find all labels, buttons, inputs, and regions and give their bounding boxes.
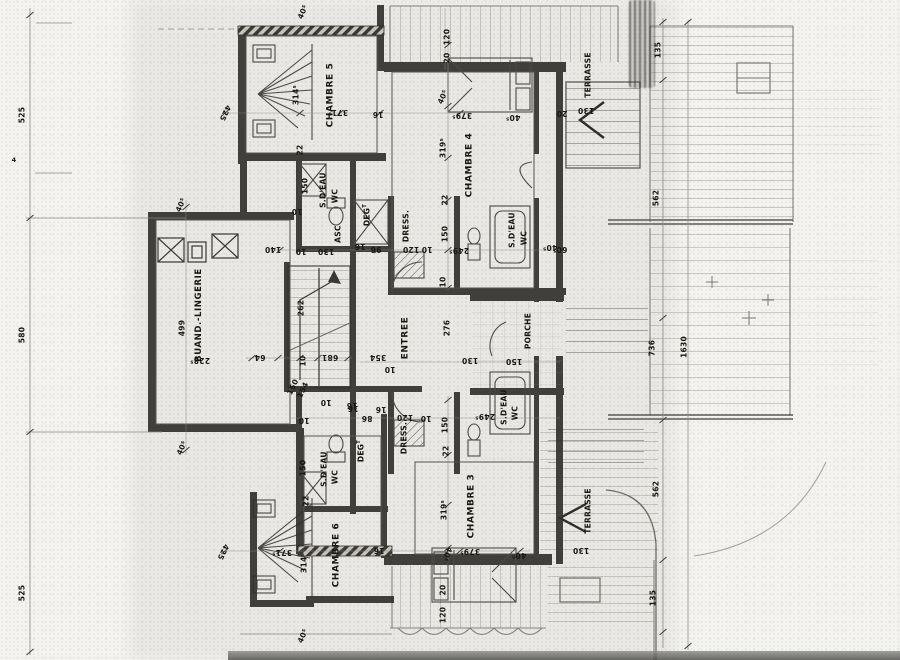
- dim-ch5-16: 16: [372, 110, 383, 118]
- dim-dress-l-120: 120: [397, 413, 414, 421]
- dim-dress-u-249-5: 249⁵: [449, 246, 469, 254]
- dim-row-140: 140: [265, 245, 282, 253]
- dim-stair-10: 10: [299, 355, 307, 366]
- scan-smudge: [629, 0, 655, 88]
- dim-deg-l-16a: 16: [347, 404, 358, 412]
- dim-left-580: 580: [18, 327, 26, 344]
- deg-upper-sup: T: [362, 204, 368, 208]
- scan-edge-bar: [228, 651, 900, 660]
- dim-deg-l-86: 86: [361, 414, 372, 422]
- room-label-sdeau-lower-right: S.D'EAU: [500, 389, 508, 425]
- dim-ch6-371-5: 371⁵: [272, 548, 292, 556]
- dim-terr-bottom-130: 130: [573, 546, 590, 554]
- room-label-ascenseur: ASC: [334, 225, 342, 243]
- deg-lower-sup: T: [356, 440, 362, 444]
- dim-bottomdeck-20: 20: [439, 584, 447, 595]
- dim-bottomdeck-120: 120: [439, 607, 447, 624]
- dim-ch3-40-5b: 40⁵: [512, 551, 527, 559]
- dim-ch4-319-5: 319⁵: [439, 138, 447, 158]
- dim-dress-l-249-5: 249⁵: [475, 412, 495, 420]
- dim-sdeau-ur-60-5: 60⁵: [553, 245, 568, 253]
- dim-terr-top-20: 20: [556, 109, 567, 117]
- dim-right-562-top: 562: [652, 190, 660, 207]
- dim-row-16: 16: [354, 242, 365, 250]
- dim-terr-top-130: 130: [578, 106, 595, 114]
- room-label-sdeau-upper-left: S.D'EAU: [319, 172, 327, 208]
- dim-sdeau-ul-150: 150: [301, 178, 309, 195]
- dim-sdeau-ll-10b: 10: [320, 398, 331, 406]
- scanned-floor-plan: 525 580 525 4 135 562 736 1630 562 135 1…: [0, 0, 900, 660]
- dim-ch5-314-5: 314⁵: [292, 85, 300, 105]
- dim-dress-l-150: 150: [441, 417, 449, 434]
- dim-row-10: 10: [295, 247, 306, 255]
- room-label-dressing-upper: DRESS.: [402, 210, 410, 242]
- dim-sdeau-ul-10: 10: [291, 207, 302, 215]
- dim-right-736: 736: [648, 340, 656, 357]
- room-label-chambre-5: CHAMBRE 5: [327, 63, 336, 128]
- room-label-chambre-6: CHAMBRE 6: [333, 523, 342, 588]
- room-label-sdeau-upper-right: S.D'EAU: [508, 212, 516, 248]
- dim-ch5-22: 22: [296, 144, 304, 155]
- room-label-terrasse-bottom: TERRASSE: [584, 488, 592, 534]
- dim-entree-10: 10: [384, 365, 395, 373]
- dim-topdeck-120: 120: [443, 29, 451, 46]
- dim-right-562-bottom: 562: [652, 481, 660, 498]
- room-label-degagement-upper: DEGT: [363, 204, 371, 226]
- dim-left-525-top: 525: [18, 107, 26, 124]
- room-label-chambre-4: CHAMBRE 4: [466, 133, 475, 198]
- dim-porche-150: 150: [506, 357, 523, 365]
- dim-dress-u-10: 10: [421, 245, 432, 253]
- deg-lower-text: DEG: [357, 444, 366, 462]
- dim-dress-l-22: 22: [442, 445, 450, 456]
- dim-stair-681: 681: [322, 353, 339, 361]
- room-label-porche: PORCHE: [524, 313, 532, 349]
- room-label-dressing-lower: DRESS.: [400, 422, 408, 454]
- dim-porche-130: 130: [462, 356, 479, 364]
- dim-sdeau-ll-150: 150: [299, 460, 307, 477]
- dim-right-1630-total: 1630: [680, 336, 688, 358]
- dim-buand-499: 499: [178, 320, 186, 337]
- dim-right-135-top: 135: [654, 42, 662, 59]
- dim-row-96: 96: [370, 245, 381, 253]
- dim-ch3-379-5: 379⁵: [460, 547, 480, 555]
- room-label-terrasse-top: TERRASSE: [584, 52, 592, 98]
- dim-left-4: 4: [12, 157, 17, 164]
- column-boxes: [158, 234, 238, 262]
- room-label-wc-lower-right: WC: [511, 406, 519, 420]
- room-label-wc-upper-right: WC: [520, 231, 528, 245]
- room-label-entree: ENTREE: [402, 317, 411, 360]
- dim-dress-l-10: 10: [420, 414, 431, 422]
- room-label-degagement-lower: DEGT: [357, 440, 365, 462]
- room-label-chambre-3: CHAMBRE 3: [468, 474, 477, 539]
- dim-entree-276: 276: [443, 320, 451, 337]
- dim-ch4-40-5b: 40⁵: [506, 113, 521, 121]
- dim-deg-l-16b: 16: [375, 405, 386, 413]
- room-label-wc-upper-left: WC: [331, 189, 339, 203]
- dim-dress-u-120: 120: [403, 245, 420, 253]
- dim-topdeck-20: 20: [443, 52, 451, 63]
- room-label-wc-lower-left: WC: [331, 470, 339, 484]
- dim-ch4-379-5: 379⁵: [452, 111, 472, 119]
- dim-ch4-22: 22: [441, 194, 449, 205]
- dim-left-525-bottom: 525: [18, 585, 26, 602]
- dim-sdeau-ll-22: 22: [302, 495, 310, 506]
- room-label-sdeau-lower-left: S.D'EAU: [320, 451, 328, 487]
- dim-ch6-16: 16: [373, 546, 384, 554]
- deg-upper-text: DEG: [363, 208, 372, 226]
- dim-sdeau-ll-10: 10: [298, 416, 309, 424]
- dim-stair-64: 64: [254, 353, 265, 361]
- dim-ch6-314-5: 314⁵: [300, 553, 308, 573]
- dim-right-135-bottom: 135: [649, 590, 657, 607]
- dim-entree-354: 354: [370, 353, 387, 361]
- room-label-buanderie: BUAND.-LINGERIE: [195, 268, 204, 362]
- dim-ch5-371-5: 371⁵: [328, 108, 348, 116]
- dim-dress-u-10b: 10: [439, 276, 447, 287]
- dim-ch3-319-5: 319⁵: [440, 500, 448, 520]
- dim-dress-u-150: 150: [441, 226, 449, 243]
- dim-buand-228-5: 228⁵: [190, 356, 210, 364]
- dim-stair-262: 262: [297, 300, 305, 317]
- porch-tiles: [472, 301, 562, 388]
- dim-row-130: 130: [318, 247, 335, 255]
